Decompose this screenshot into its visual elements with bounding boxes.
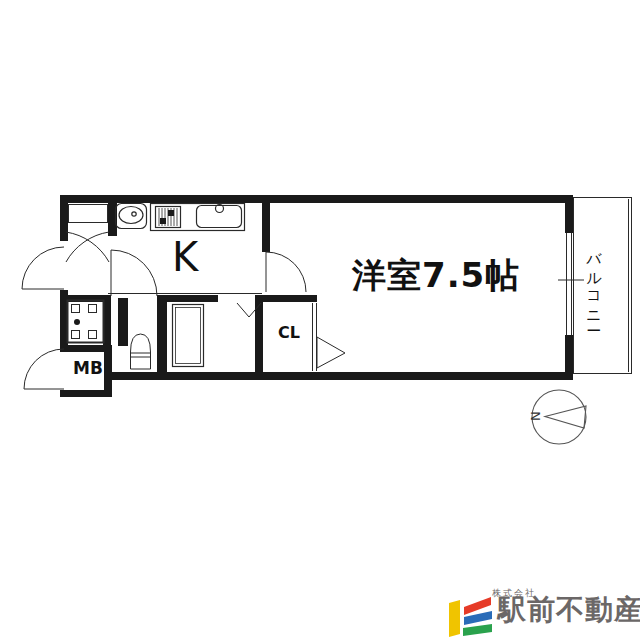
meter-box-label: MB <box>73 360 103 377</box>
wall <box>104 372 573 380</box>
genkan-door-arc <box>66 232 109 262</box>
wall <box>118 298 128 346</box>
wall <box>255 295 263 372</box>
bathtub-icon <box>68 301 104 343</box>
wall <box>565 335 573 380</box>
compass-icon: N <box>528 390 586 444</box>
mainroom-door-arc <box>266 252 306 292</box>
wall <box>60 195 573 203</box>
kitchen-door-arc <box>111 250 157 296</box>
company-name: 駅前不動産 <box>498 596 640 624</box>
wall <box>157 295 167 372</box>
washer-space-icon <box>173 305 204 367</box>
wall <box>262 195 270 252</box>
wall <box>60 195 68 241</box>
entry-door-arc <box>22 247 64 289</box>
closet-folding-door-icon <box>317 337 345 368</box>
floorplan-image: N K 洋室7.5帖 バルコニー CL MB 株式会社 駅前不動産 <box>0 0 640 640</box>
thin-lines <box>69 198 632 374</box>
kitchen-label: K <box>172 237 198 277</box>
closet-label: CL <box>278 325 300 341</box>
logo-bar-yellow <box>449 600 460 637</box>
wall <box>157 295 218 302</box>
wall <box>255 295 317 302</box>
balcony-label: バルコニー <box>586 242 601 325</box>
logo-mark <box>449 597 492 637</box>
genkan-door-arc <box>66 232 109 262</box>
compass-north-label: N <box>528 411 543 421</box>
wall <box>565 195 573 233</box>
shoe-cabinet-icon <box>69 205 108 223</box>
main-room-label: 洋室7.5帖 <box>352 258 520 292</box>
meterbox-door-arc <box>24 349 64 389</box>
logo-bar-green <box>463 624 492 636</box>
sink-icon <box>197 205 242 228</box>
basin-icon <box>116 204 147 229</box>
stove-icon <box>156 207 181 228</box>
toilet-icon <box>131 334 151 369</box>
floorplan-drawing: N <box>0 0 640 640</box>
